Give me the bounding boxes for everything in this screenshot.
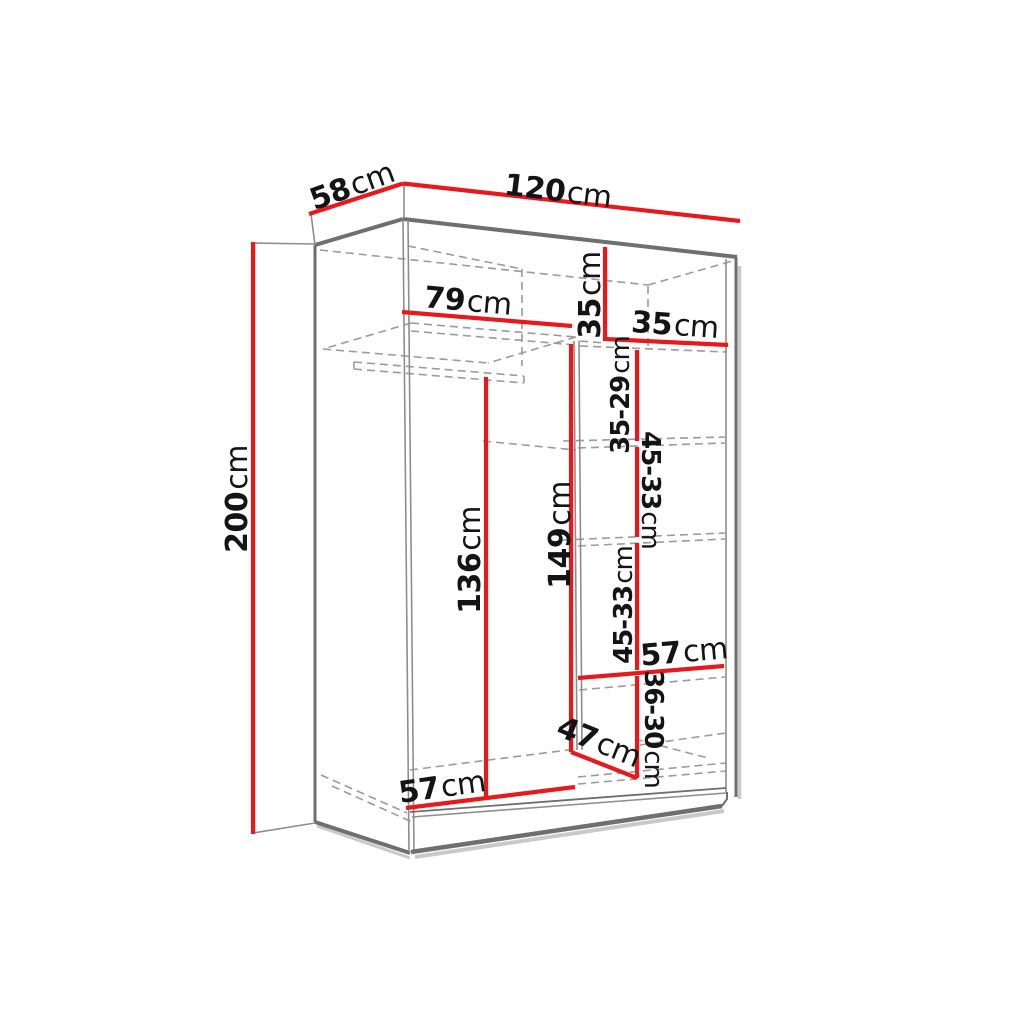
bottom-shelf-back-left [410,749,576,770]
dim-width-label: 120cm [502,167,613,215]
dim-top-right-width-label: 35cm [630,304,720,345]
hanging-rail-top [354,362,524,376]
bottom-left-shadow [317,826,410,858]
hanging-rail-bottom [354,369,524,383]
height-ext-bottom [253,823,315,833]
dim-height-label: 200cm [220,445,255,553]
dim-right4-label: 36-30cm [638,670,668,788]
diagram-canvas: 58cm 120cm 200cm 79cm 35cm 35cm 35-29cm … [0,0,1024,1024]
bottom-shadow [415,811,724,857]
left-mid-hidden [483,441,576,450]
extension-lines [253,184,404,833]
dimension-labels: 58cm 120cm 200cm 79cm 35cm 35cm 35-29cm … [220,155,730,811]
dim-depth-label: 58cm [305,155,399,218]
right-shelf1 [580,346,727,352]
dim-middle-height-label: 149cm [543,481,578,589]
shadow-lines [317,266,740,858]
wardrobe-dimension-diagram: 58cm 120cm 200cm 79cm 35cm 35cm 35-29cm … [0,0,1024,1024]
back-top-right-diagonal [648,260,736,285]
top-shelf-back [323,349,488,363]
dim-right2-label: 45-33cm [635,431,665,549]
dim-hanging-height-label: 136cm [453,506,488,614]
plinth-right-foot [722,792,727,806]
depth-connector [311,214,315,245]
dim-right3-label: 45-33cm [609,546,639,664]
top-shelf-front2 [411,331,576,345]
floor-back-diag1 [321,775,407,813]
dim-top-right-height-label: 35cm [573,251,608,338]
height-ext-top [253,243,316,244]
top-front-edge [403,219,737,257]
dim-right1-label: 35-29cm [606,336,636,454]
left-bottom-edge [315,822,410,853]
right-shelf1-stub [580,341,604,343]
top-side-edge [315,219,403,245]
top-shelf-side-left [323,323,411,349]
